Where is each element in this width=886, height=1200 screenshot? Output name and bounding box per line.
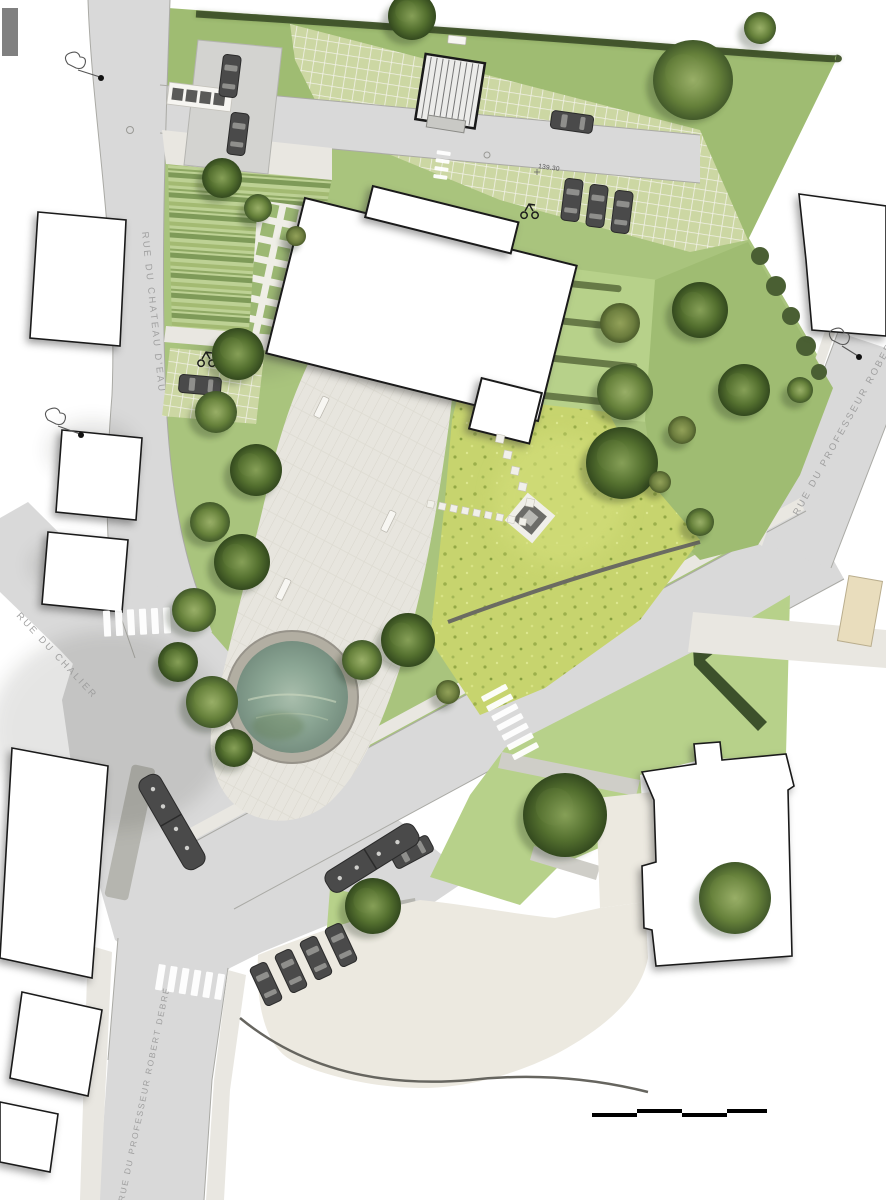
context-building	[30, 212, 126, 346]
bench	[448, 35, 467, 45]
site-plan-drawing: RUE DU CHATEAU D'EAU RUE DU PROFESSEUR R…	[0, 0, 886, 1200]
stepping-stone	[484, 511, 492, 519]
context-building	[799, 194, 886, 336]
context-building	[2, 8, 18, 56]
stepping-stone	[473, 509, 481, 517]
context-building	[56, 430, 142, 520]
stepping-stone	[519, 518, 527, 526]
stepping-stone	[510, 466, 519, 475]
stepping-stone	[438, 502, 446, 510]
context-building	[0, 1102, 58, 1172]
tree	[738, 12, 776, 50]
stepping-stone	[525, 498, 534, 507]
context-building	[10, 992, 102, 1096]
context-building	[42, 532, 128, 612]
site-plan-page: RUE DU CHATEAU D'EAU RUE DU PROFESSEUR R…	[0, 0, 886, 1200]
scale-bar	[592, 1109, 767, 1117]
stepping-stone	[518, 482, 527, 491]
stepping-stone	[495, 434, 504, 443]
stepping-stone	[427, 500, 435, 508]
stepping-stone	[507, 515, 515, 523]
stepping-stone	[496, 513, 504, 521]
stepping-stone	[461, 507, 469, 515]
context-building	[0, 748, 108, 978]
stepping-stone	[503, 450, 512, 459]
stepping-stone	[450, 504, 458, 512]
